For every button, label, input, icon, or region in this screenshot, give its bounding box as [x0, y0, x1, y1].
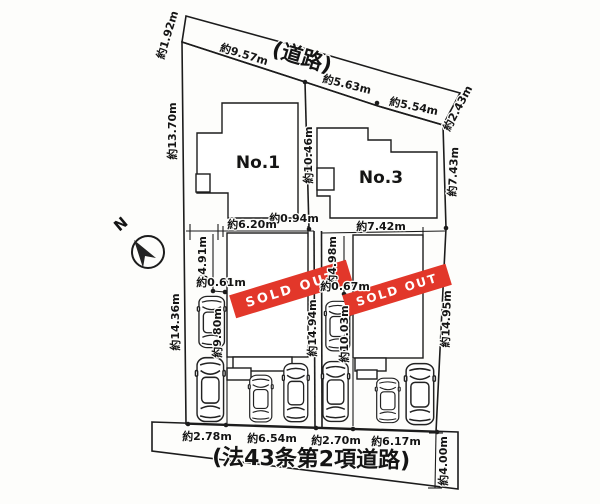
dim-lot1-offset: 約0.61m: [196, 275, 246, 289]
house-no1-label: No.1: [236, 153, 280, 173]
car-icon: [248, 375, 273, 422]
car-icon: [195, 358, 225, 422]
dim-bottom-seg4: 約6.17m: [371, 434, 421, 448]
center-boundary-lower-right: [322, 231, 323, 428]
house-no3-label: No.3: [359, 168, 403, 188]
dim-center-upper: 約10.46m: [301, 126, 315, 183]
dim-right-lower: 約14.95m: [438, 290, 454, 348]
boundary-node: [351, 427, 356, 432]
car-icon: [321, 362, 349, 422]
dim-left-lower: 約14.36m: [168, 293, 182, 350]
car-icon: [282, 364, 309, 422]
boundary-node: [435, 430, 440, 435]
boundary-node: [303, 80, 308, 85]
dim-lot2-offset: 約0.67m: [320, 279, 370, 293]
lot2-entrance-step2: [357, 370, 377, 379]
boundary-node: [307, 227, 312, 232]
lot1-entrance-step2: [227, 368, 251, 380]
dim-lot1-width: 約6.20m: [227, 217, 277, 231]
house-no3-porch: [317, 168, 334, 190]
dim-lot2-drive: 約10.03m: [337, 305, 351, 362]
house-no1-porch: [196, 174, 210, 192]
site-plan-page: No.1 No.3: [0, 0, 600, 504]
dim-center-lower: 約14.94m: [305, 299, 319, 356]
dim-lot2-depth: 約4.98m: [325, 236, 339, 286]
boundary-node: [444, 226, 449, 231]
boundary-node: [224, 423, 229, 428]
dim-node: [223, 290, 228, 295]
dim-lot2-width: 約7.42m: [356, 219, 406, 233]
car-icon: [404, 364, 435, 425]
dim-lot1-drive: 約9.80m: [210, 308, 224, 358]
site-plan-drawing: No.1 No.3: [0, 0, 600, 504]
dim-left-upper: 約13.70m: [165, 102, 179, 159]
boundary-node: [314, 426, 319, 431]
boundary-node: [186, 422, 191, 427]
lot2-entrance-step1: [355, 358, 386, 371]
dim-bottom-seg3: 約2.70m: [311, 433, 361, 447]
dim-bottom-seg1: 約2.78m: [182, 429, 232, 443]
dim-node: [211, 289, 216, 294]
dim-bottom-seg2: 約6.54m: [247, 431, 297, 445]
dim-bottom-road-width: 約4.00m: [436, 436, 450, 486]
bottom-road-label: (法43条第2項道路): [212, 444, 410, 473]
car-icon: [375, 378, 400, 422]
boundary-node: [375, 101, 380, 106]
dim-right-upper: 約7.43m: [445, 147, 462, 197]
